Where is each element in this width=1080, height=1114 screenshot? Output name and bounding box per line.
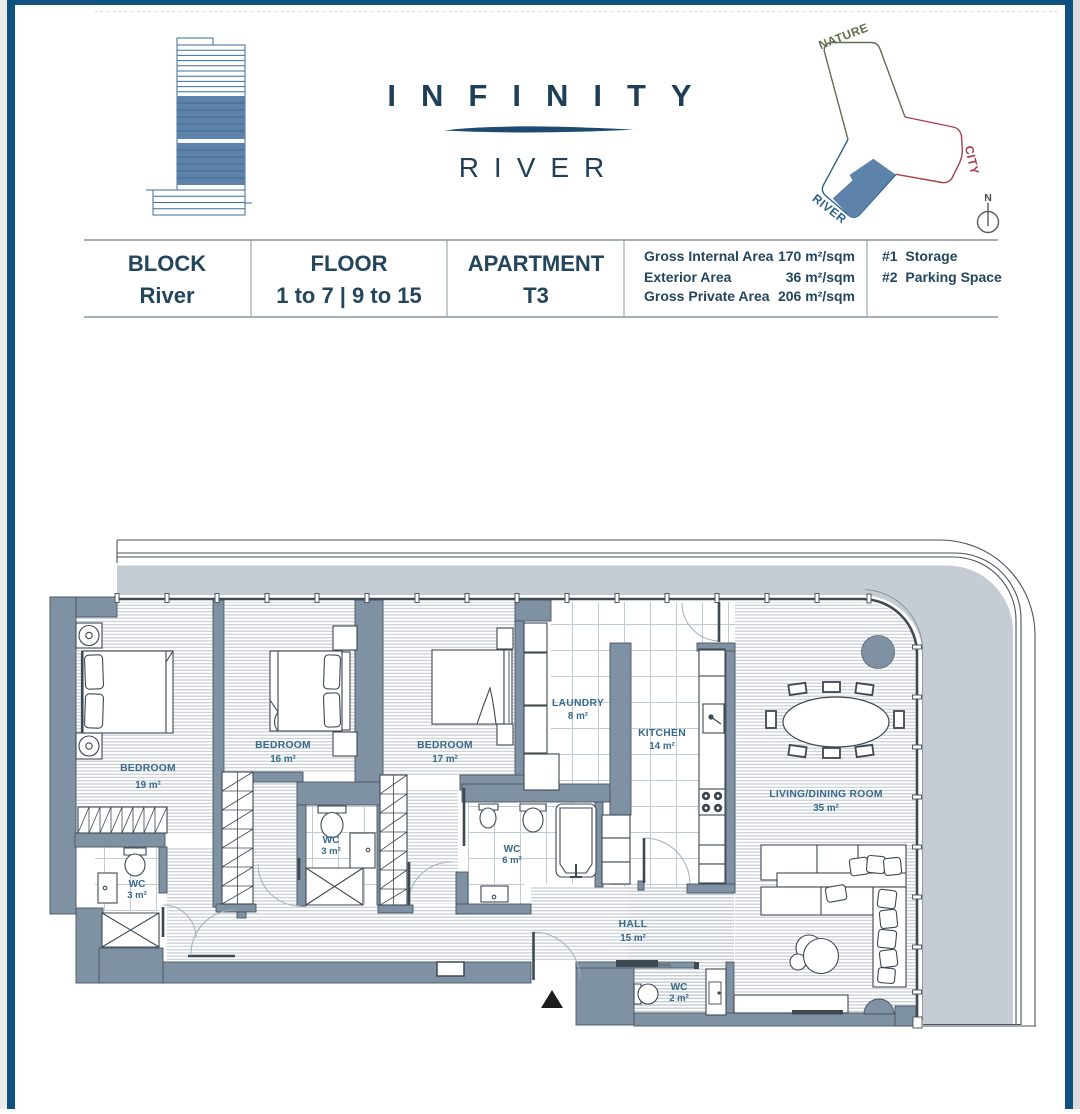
svg-text:WC: WC (323, 835, 340, 846)
svg-text:LIVING/DINING ROOM: LIVING/DINING ROOM (769, 789, 883, 800)
svg-text:BEDROOM: BEDROOM (120, 763, 176, 774)
svg-text:2 m²: 2 m² (669, 993, 689, 1004)
svg-text:BLOCK: BLOCK (128, 251, 206, 276)
svg-text:#1 Storage: #1 Storage (882, 248, 958, 264)
svg-text:FLOOR: FLOOR (311, 251, 388, 276)
svg-text:WC: WC (671, 982, 688, 993)
svg-text:35 m²: 35 m² (813, 803, 839, 814)
svg-text:BEDROOM: BEDROOM (255, 740, 311, 751)
svg-text:N: N (984, 192, 992, 204)
svg-text:14 m²: 14 m² (649, 741, 675, 752)
svg-text:INFINITY: INFINITY (387, 78, 716, 113)
svg-text:LAUNDRY: LAUNDRY (552, 698, 604, 709)
svg-text:WC: WC (504, 844, 521, 855)
svg-text:16 m²: 16 m² (270, 754, 296, 765)
svg-text:HALL: HALL (619, 919, 648, 930)
svg-text:#2 Parking Space: #2 Parking Space (882, 269, 1002, 285)
svg-text:15 m²: 15 m² (620, 933, 646, 944)
svg-text:3 m²: 3 m² (321, 846, 341, 857)
svg-text:WC: WC (129, 879, 146, 890)
svg-text:APARTMENT: APARTMENT (468, 251, 605, 276)
svg-text:206 m²/sqm: 206 m²/sqm (778, 288, 855, 304)
svg-text:17 m²: 17 m² (432, 754, 458, 765)
svg-text:RIVER: RIVER (459, 152, 620, 183)
svg-text:Gross Private Area: Gross Private Area (644, 288, 770, 304)
svg-text:River: River (139, 283, 194, 308)
svg-text:36 m²/sqm: 36 m²/sqm (786, 269, 855, 285)
svg-text:Exterior Area: Exterior Area (644, 269, 732, 285)
svg-text:Gross Internal Area: Gross Internal Area (644, 248, 774, 264)
svg-text:3 m²: 3 m² (127, 890, 147, 901)
svg-text:BEDROOM: BEDROOM (417, 740, 473, 751)
svg-text:8 m²: 8 m² (568, 711, 589, 722)
svg-text:T3: T3 (523, 283, 549, 308)
svg-text:6 m²: 6 m² (502, 855, 522, 866)
svg-text:170 m²/sqm: 170 m²/sqm (778, 248, 855, 264)
svg-text:19 m²: 19 m² (135, 780, 161, 791)
svg-text:KITCHEN: KITCHEN (638, 728, 686, 739)
svg-text:1 to 7 | 9 to 15: 1 to 7 | 9 to 15 (276, 283, 422, 308)
